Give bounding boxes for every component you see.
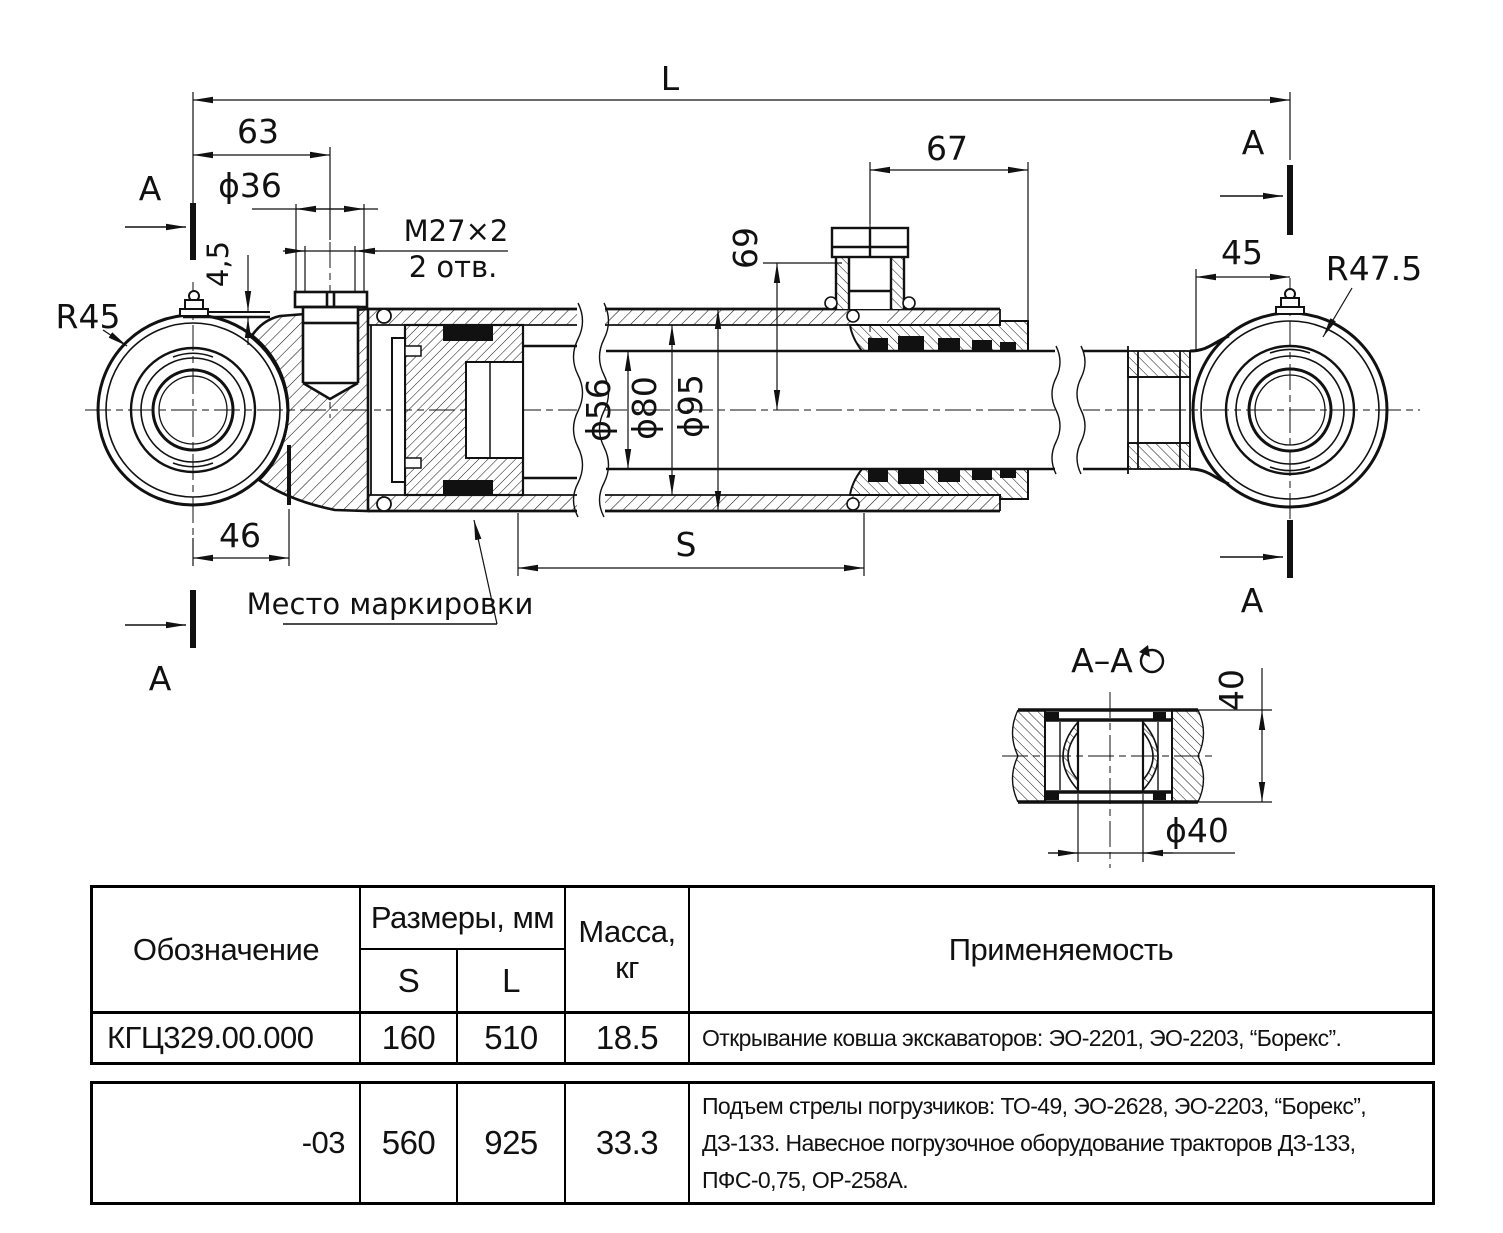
section-a-bottom-left: A [149, 659, 172, 698]
col-header-designation: Обозначение [93, 888, 361, 1011]
port-left [295, 292, 367, 399]
col-header-mass: Масса,кг [566, 888, 690, 1011]
section-a-top-right: A [1242, 123, 1265, 162]
section-a-top-left: A [139, 169, 162, 208]
row2-s: 560 [361, 1084, 458, 1202]
section-aa-title: А–А [1071, 641, 1133, 680]
port-right [825, 228, 915, 309]
row2-mass: 33.3 [566, 1084, 690, 1202]
dim-63-label: 63 [237, 112, 279, 151]
col-header-application: Применяемость [690, 888, 1432, 1011]
row1-s: 160 [361, 1011, 458, 1062]
break-lines-rod [1052, 345, 1085, 475]
r475-leader [1323, 288, 1352, 337]
engineering-drawing-page: { "colors": { "ink": "#111111", "backgro… [0, 0, 1503, 1233]
col-header-sizes: Размеры, мм [361, 888, 566, 950]
dim-dia40-label: ϕ40 [1165, 811, 1229, 850]
dim-dia80-label: ϕ80 [625, 376, 664, 440]
dim-67-label: 67 [926, 129, 968, 168]
dim-dia36-label: ϕ36 [218, 166, 282, 205]
dim-40-label: 40 [1212, 669, 1251, 711]
spec-table-variant: -03 560 925 33.3 Подъем стрелы погрузчик… [90, 1081, 1435, 1205]
marking-place-label: Место маркировки [247, 587, 534, 621]
row1-application: Открывание ковша экскаваторов: ЭО-2201, … [690, 1011, 1432, 1062]
dim-m27-label: M27×2 [404, 214, 509, 248]
col-header-s: S [361, 950, 458, 1011]
dim-46-label: 46 [219, 516, 261, 555]
dim-45-label: 45 [1221, 233, 1263, 272]
grease-fitting-right-icon [1276, 289, 1304, 314]
row1-l: 510 [458, 1011, 566, 1062]
grease-fitting-left-icon [180, 291, 208, 316]
dim-m27-holes-label: 2 отв. [409, 250, 498, 284]
section-a-bottom-right: A [1241, 581, 1264, 620]
dim-45wall-label: 4,5 [201, 241, 235, 287]
dim-dia56-label: ϕ56 [579, 378, 618, 442]
dimension-labels: L 63 ϕ36 M27×2 2 отв. 4,5 R45 A A A A 67… [56, 59, 1423, 850]
cylinder-drawing: L 63 ϕ36 M27×2 2 отв. 4,5 R45 A A A A 67… [0, 0, 1503, 880]
dim-r45-label: R45 [56, 297, 121, 336]
row2-application: Подъем стрелы погрузчиков: ТО-49, ЭО-262… [690, 1084, 1432, 1202]
dim-r475-label: R47.5 [1326, 249, 1422, 288]
dim-69-label: 69 [726, 227, 765, 269]
dim-L-label: L [661, 59, 680, 98]
row1-mass: 18.5 [566, 1011, 690, 1062]
col-header-l: L [458, 950, 566, 1011]
dim-S-label: S [676, 525, 697, 564]
row2-l: 925 [458, 1084, 566, 1202]
row1-designation: КГЦ329.00.000 [93, 1011, 361, 1062]
dim-dia95-label: ϕ95 [671, 374, 710, 438]
rotated-view-icon [1139, 645, 1163, 672]
row2-designation: -03 [93, 1084, 361, 1202]
spec-table-main: Обозначение Размеры, мм S L Масса,кг При… [90, 885, 1435, 1065]
